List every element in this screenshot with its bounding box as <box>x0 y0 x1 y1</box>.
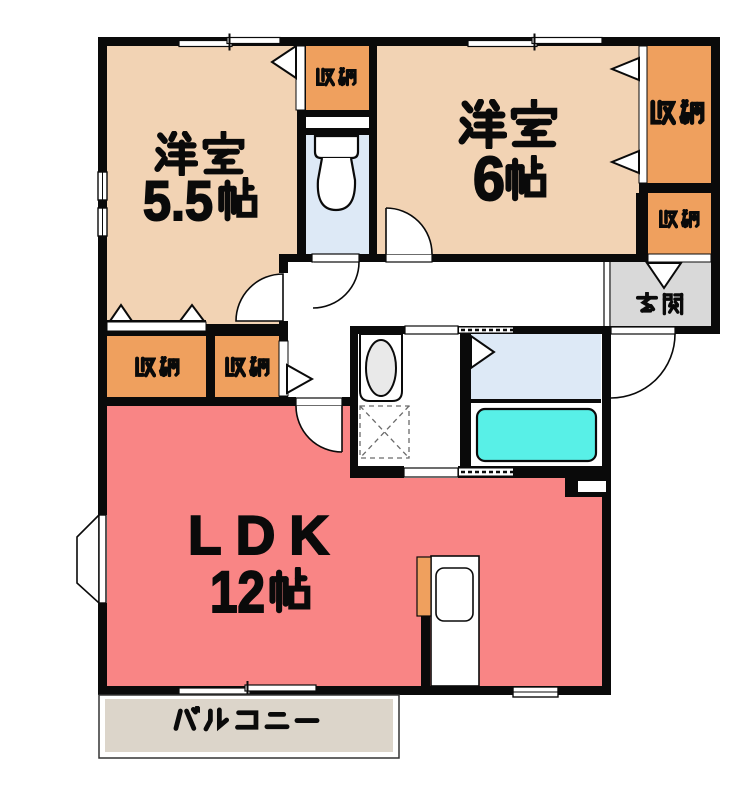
svg-text:LDK: LDK <box>188 504 329 566</box>
svg-text:12: 12 <box>210 560 265 625</box>
svg-text:6: 6 <box>473 145 505 214</box>
svg-text:5.5: 5.5 <box>143 169 213 232</box>
